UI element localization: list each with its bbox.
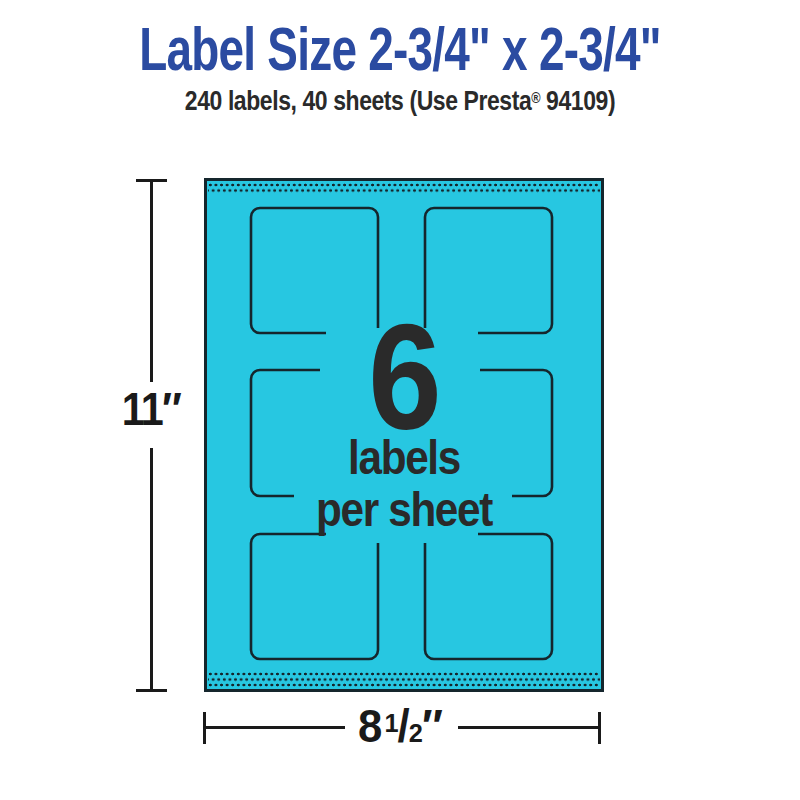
label-outline-row3-left: [251, 534, 378, 659]
page-title: Label Size 2-3/4" x 2-3/4": [104, 18, 696, 80]
label-outline-row3-right: [425, 534, 552, 659]
label-outline-row1-left: [251, 208, 378, 333]
width-fraction-slash: /: [398, 700, 409, 752]
product-diagram: Label Size 2-3/4" x 2-3/4" 240 labels, 4…: [0, 0, 800, 800]
width-fraction-denominator: 2: [409, 718, 422, 748]
labels-count: 6: [228, 322, 580, 432]
height-dimension-label: 11″: [94, 385, 208, 432]
width-inch-mark: ″: [422, 700, 442, 752]
width-whole-number: 8: [358, 700, 381, 752]
subtitle-text-suffix: 94109): [540, 85, 615, 116]
height-dimension-line-upper: [150, 180, 153, 382]
labels-per-sheet-callout: 6 labels per sheet: [228, 322, 580, 536]
height-dimension-tick-bottom: [136, 689, 167, 692]
width-dimension-label: 81/2″: [324, 703, 476, 749]
width-dimension-tick-right: [598, 712, 601, 744]
width-dimension-line-right: [458, 726, 600, 729]
callout-caption-line2: per sheet: [228, 484, 580, 536]
subtitle: 240 labels, 40 sheets (Use Presta® 94109…: [72, 87, 728, 115]
label-outline-row1-right: [425, 208, 552, 333]
subtitle-text-prefix: 240 labels, 40 sheets (Use Presta: [185, 85, 531, 116]
registered-trademark-mark: ®: [531, 89, 540, 106]
callout-caption-line1: labels: [228, 432, 580, 484]
width-fraction-numerator: 1: [384, 708, 397, 738]
height-dimension-line-lower: [150, 448, 153, 691]
